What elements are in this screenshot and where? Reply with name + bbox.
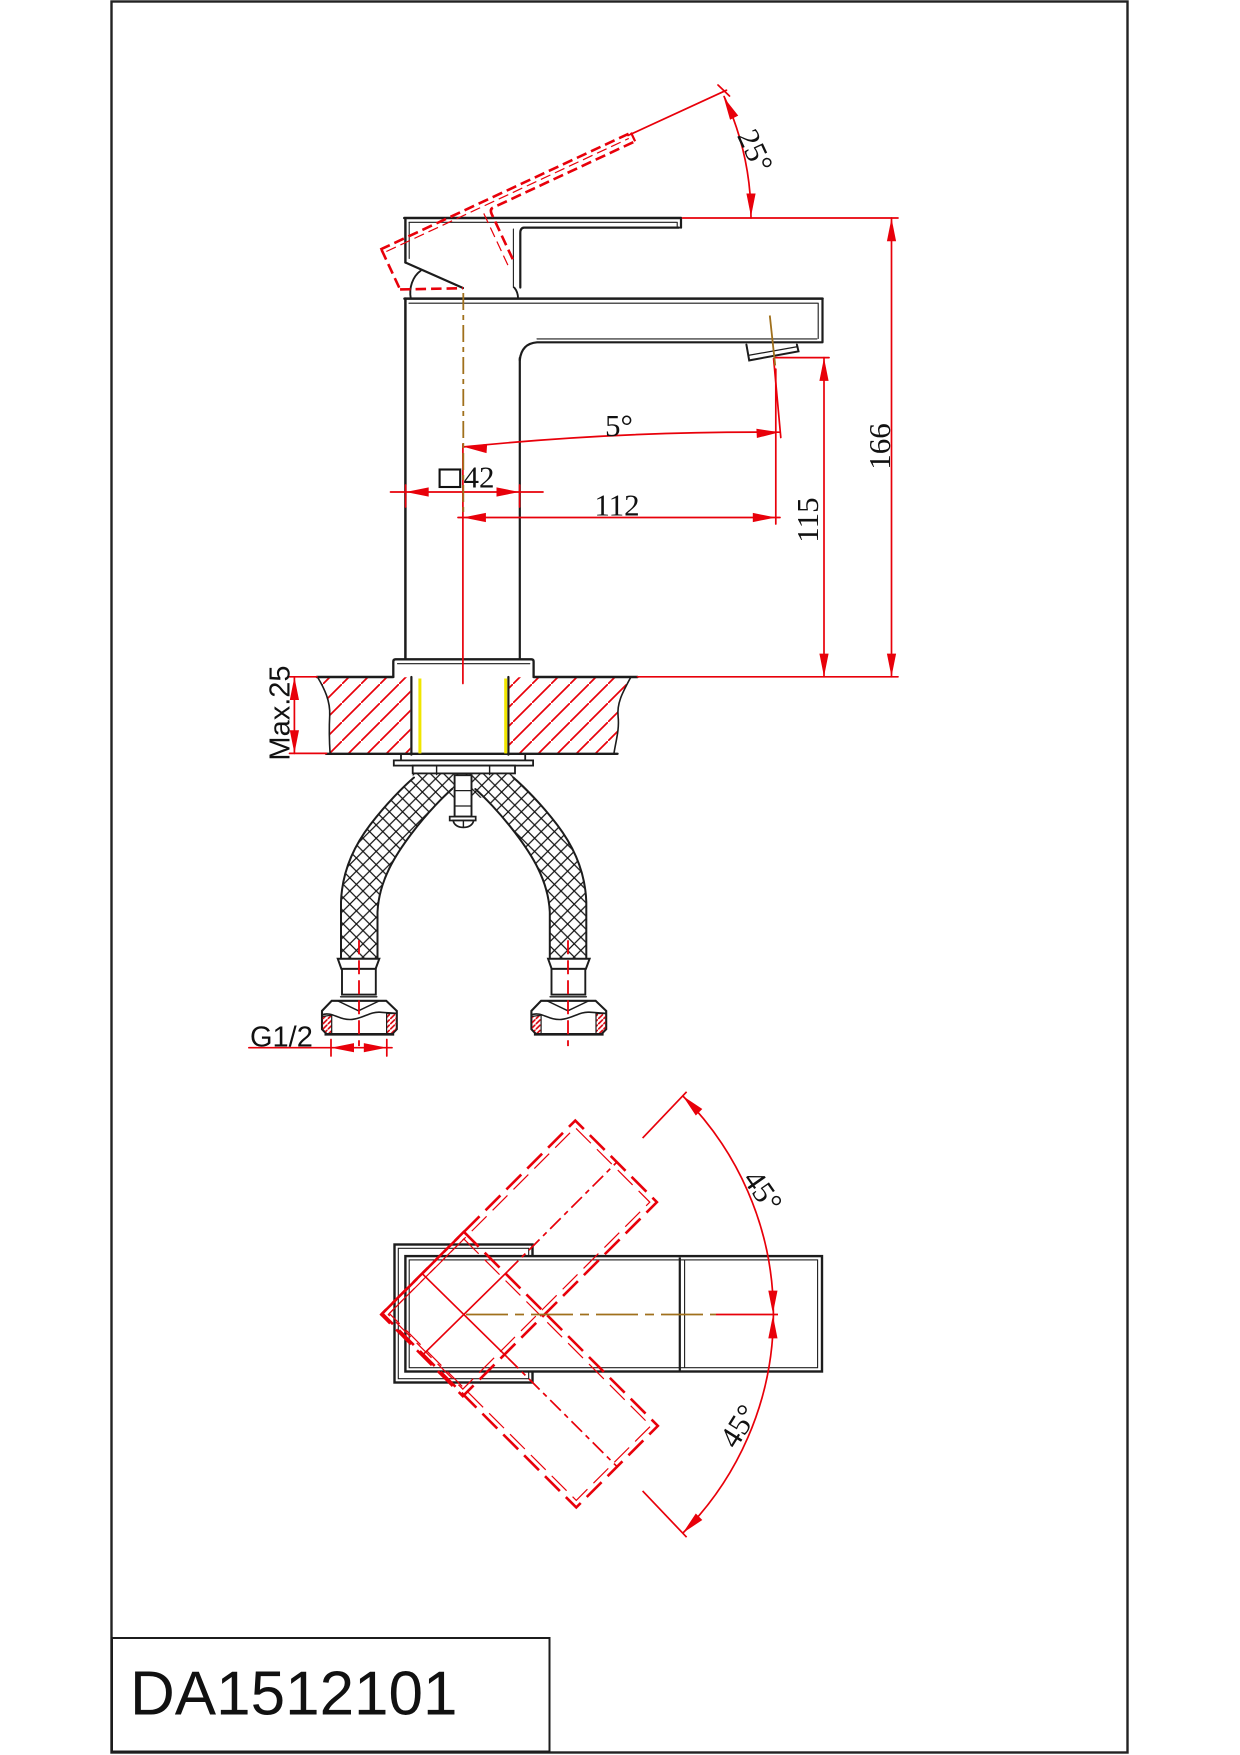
svg-text:42: 42 [464,460,495,495]
svg-text:5°: 5° [605,408,633,443]
svg-text:112: 112 [594,488,639,523]
svg-text:115: 115 [790,497,825,542]
svg-text:166: 166 [862,423,897,470]
svg-text:Max.25: Max.25 [265,665,297,760]
svg-text:G1/2: G1/2 [250,1022,313,1054]
svg-text:DA1512101: DA1512101 [130,1660,458,1729]
